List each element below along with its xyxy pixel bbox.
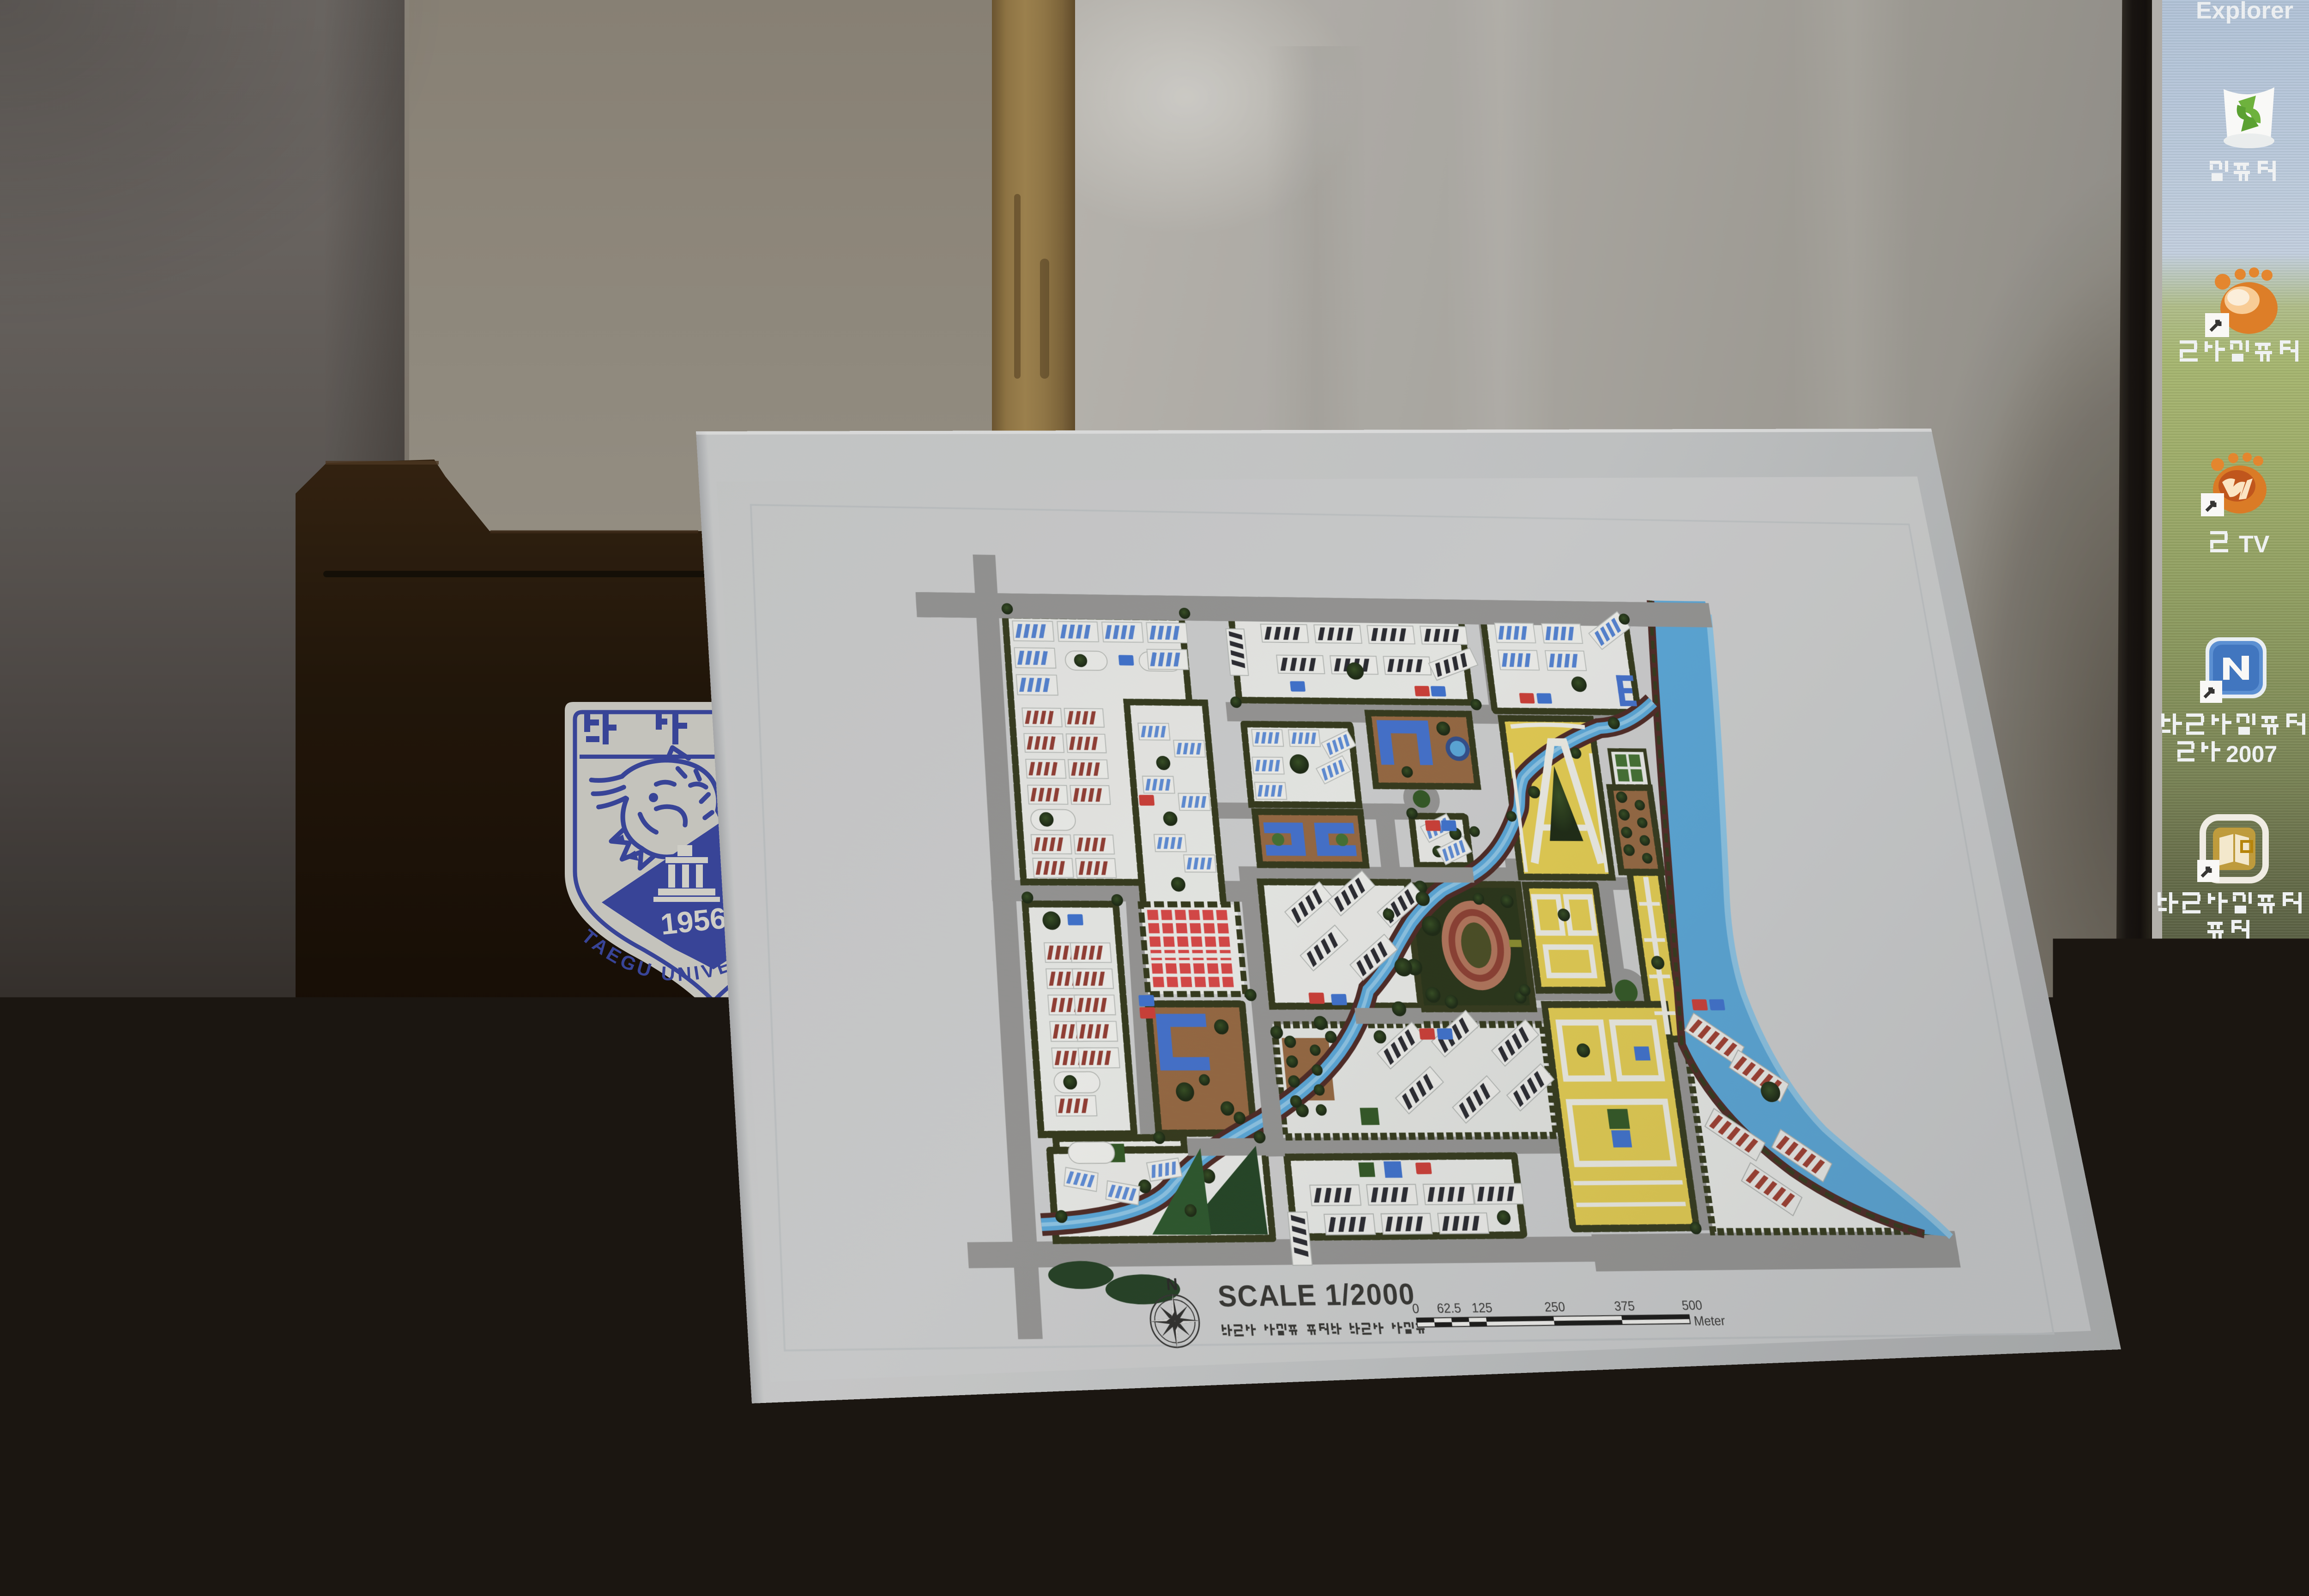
- svg-text:Explorer: Explorer: [2196, 0, 2293, 24]
- svg-text:1956: 1956: [659, 901, 728, 941]
- svg-text:2007: 2007: [2226, 741, 2277, 767]
- svg-text:TV: TV: [2239, 531, 2270, 558]
